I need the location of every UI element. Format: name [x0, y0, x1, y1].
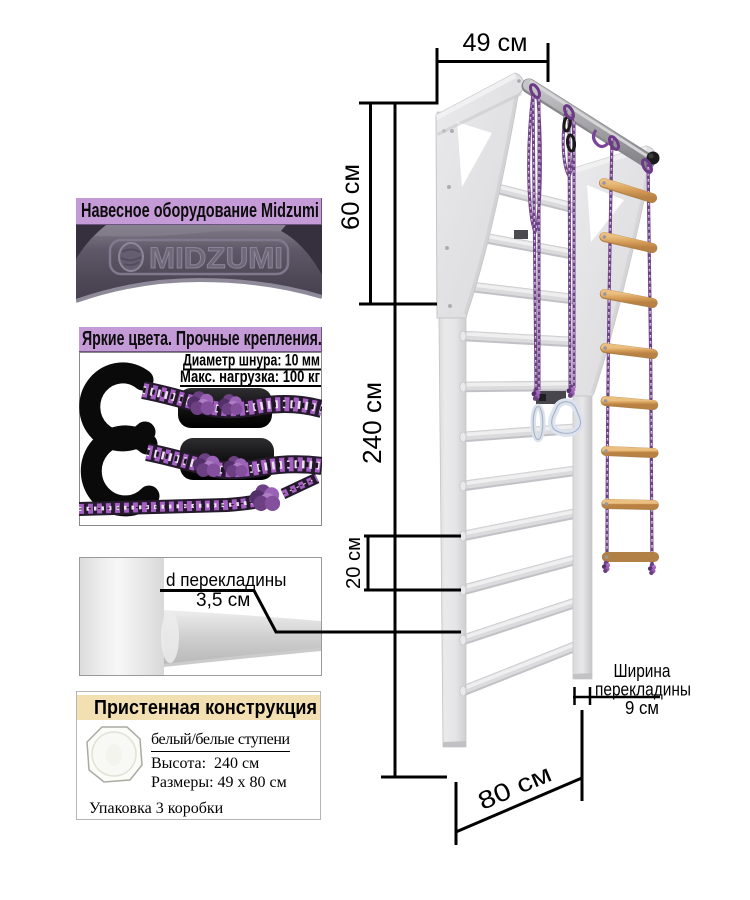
svg-text:Ширина: Ширина — [614, 661, 672, 681]
svg-text:49 см: 49 см — [463, 29, 528, 57]
svg-text:60 см: 60 см — [337, 164, 365, 230]
svg-text:20 см: 20 см — [343, 537, 365, 589]
svg-text:240 см: 240 см — [357, 382, 387, 464]
svg-text:9 см: 9 см — [625, 698, 659, 718]
svg-text:перекладины: перекладины — [595, 680, 691, 700]
